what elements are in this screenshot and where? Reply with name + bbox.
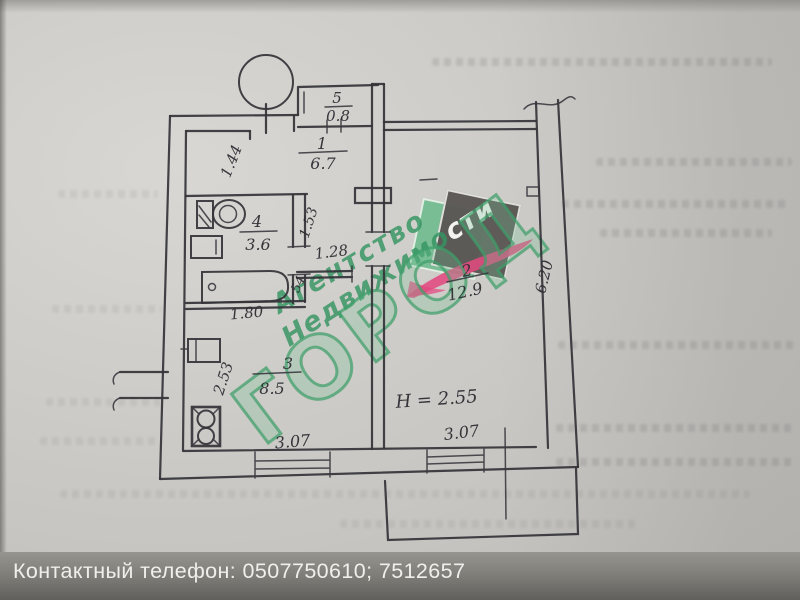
room-2-area: 12.9 (445, 279, 484, 305)
photo-bottom-edge: Контактный телефон: 0507750610; 7512657 (0, 552, 800, 600)
room-4-number: 4 (251, 212, 262, 231)
dim-corridor-width: 1.44 (217, 142, 246, 180)
bathroom-sink (191, 236, 222, 258)
wall-break-mark (524, 97, 575, 109)
contact-phone-text: Контактный телефон: 0507750610; 7512657 (13, 559, 465, 584)
room-2-label: 2 12.9 (445, 260, 488, 304)
room-1-label: 1 6.7 (299, 134, 347, 173)
room-4-area: 3.6 (245, 235, 270, 254)
outer-walls (160, 97, 578, 479)
vent-shaft-circle (239, 55, 293, 109)
dimension-extension-line (505, 428, 506, 519)
room-3-label: 3 8.5 (253, 354, 301, 398)
pencil-mark (420, 179, 437, 180)
toilet (197, 200, 245, 228)
room-3-area: 8.5 (259, 379, 284, 398)
bathtub (202, 271, 288, 303)
room-5-number: 5 (332, 89, 342, 107)
room-5-label: 5 0.8 (325, 89, 352, 125)
dim-kitchen-window: 3.07 (274, 430, 312, 452)
photographed-paper-background: Агентство Недвижимости ГОРОД (0, 0, 800, 600)
room-1-area: 6.7 (310, 154, 336, 173)
kitchen-sink (181, 339, 220, 362)
dim-room-depth: 6.20 (531, 258, 557, 295)
dim-hall-depth: 1.53 (297, 205, 322, 240)
dim-bath-width: 1.80 (229, 303, 264, 324)
dim-room-window: 3.07 (442, 421, 480, 444)
dim-kitchen-depth: 2.53 (209, 360, 237, 398)
room-5-area: 0.8 (326, 107, 350, 125)
dim-ceiling-height: H = 2.55 (394, 386, 479, 413)
stove (192, 407, 220, 446)
room-4-label: 4 3.6 (240, 212, 277, 254)
adjoining-wall-stub (113, 372, 168, 410)
wall-niche-mark (527, 187, 539, 196)
room-3-number: 3 (283, 354, 293, 373)
balcony-outline (385, 468, 578, 540)
floor-plan: 5 0.8 1 6.7 4 3.6 3 8.5 2 12.9 1.44 1.53… (0, 0, 800, 600)
middle-wall (355, 84, 391, 449)
dim-hall-width: 1.28 (314, 241, 349, 263)
room-1-number: 1 (317, 134, 327, 153)
